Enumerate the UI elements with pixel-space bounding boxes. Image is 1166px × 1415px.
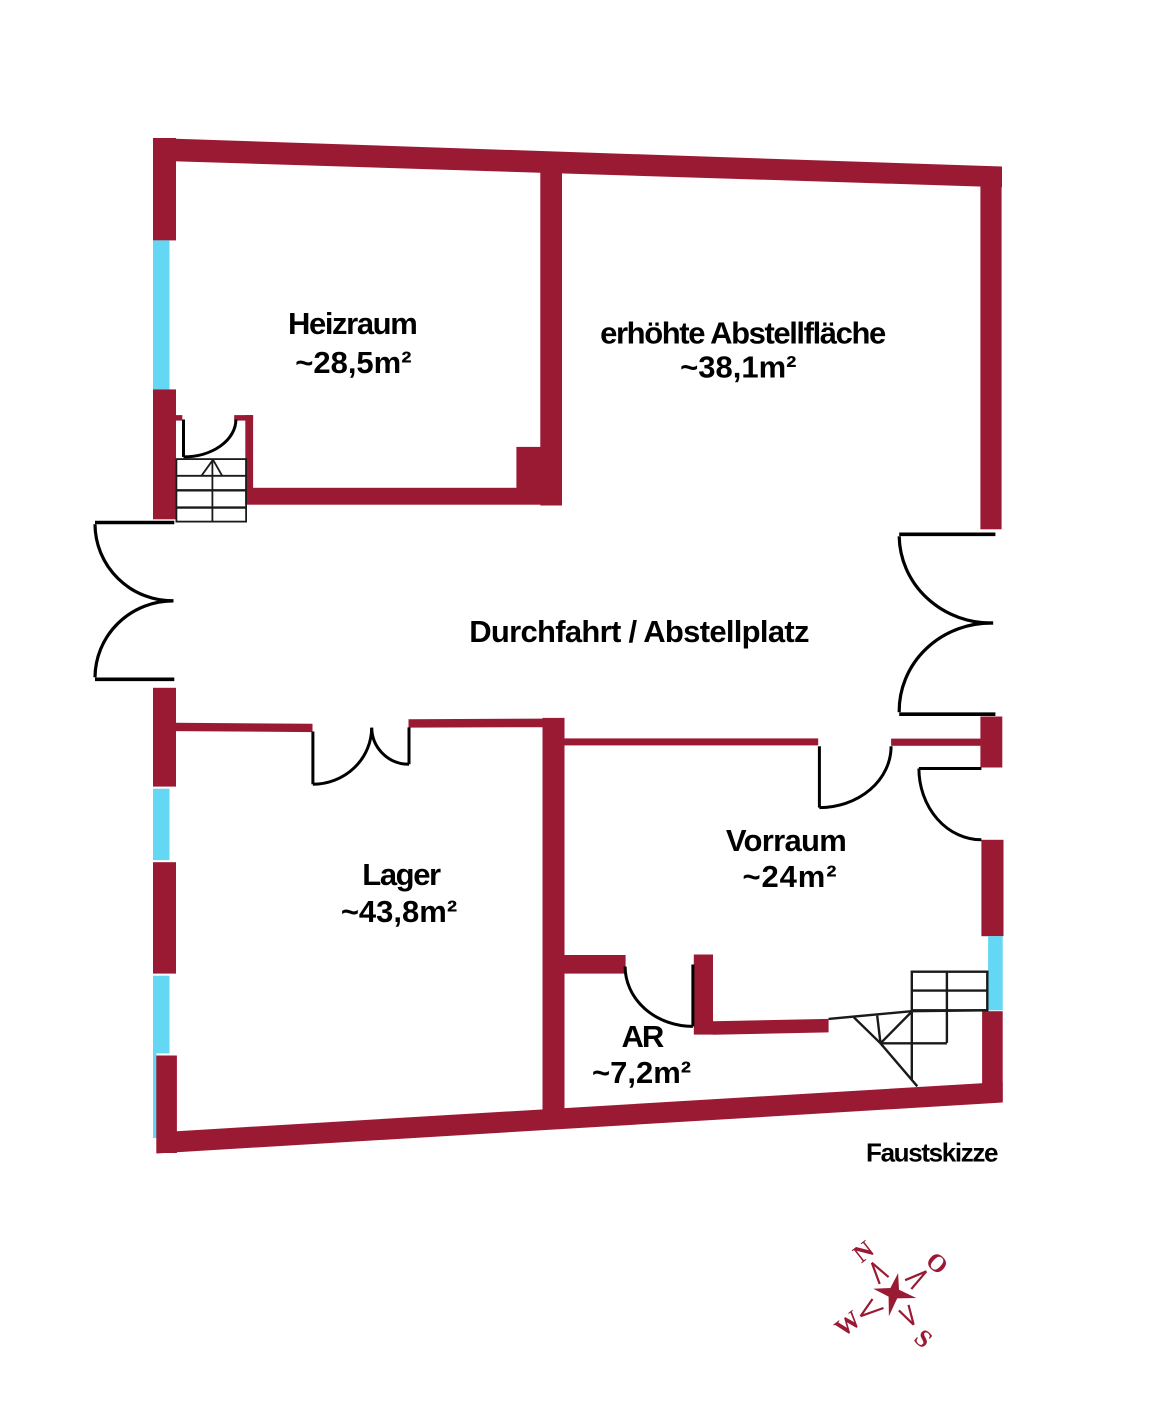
svg-text:~43,8m²: ~43,8m² [341,894,457,929]
svg-text:~7,2m²: ~7,2m² [592,1055,691,1090]
svg-text:~28,5m²: ~28,5m² [295,345,411,380]
svg-text:Lager: Lager [362,857,441,892]
svg-text:~38,1m²: ~38,1m² [680,350,796,385]
svg-text:Heizraum: Heizraum [288,306,416,341]
svg-text:AR: AR [622,1019,664,1054]
svg-text:Vorraum: Vorraum [726,823,846,858]
svg-text:erhöhte Abstellfläche: erhöhte Abstellfläche [600,316,886,351]
svg-text:Durchfahrt / Abstellplatz: Durchfahrt / Abstellplatz [469,614,809,649]
svg-text:O: O [920,1247,953,1280]
svg-text:N: N [848,1236,879,1268]
svg-text:S: S [909,1324,937,1353]
svg-text:Faustskizze: Faustskizze [866,1137,998,1167]
svg-text:W: W [830,1306,866,1343]
svg-text:~24m²: ~24m² [743,859,838,894]
